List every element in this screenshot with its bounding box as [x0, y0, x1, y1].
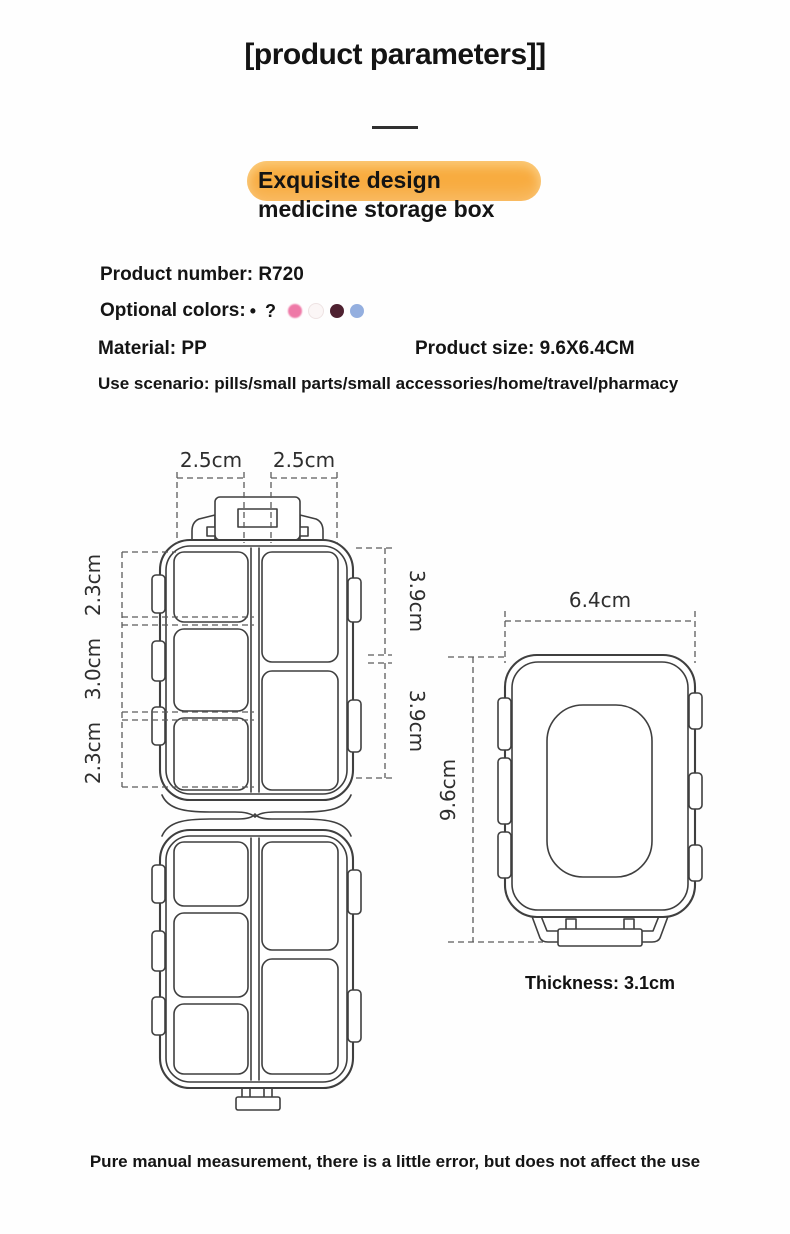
color-swatch-pink — [288, 304, 302, 318]
material: Material: PP — [98, 338, 207, 360]
dim-label-right-top: 3.9cm — [405, 570, 429, 632]
dim-right-heights: 3.9cm 3.9cm — [356, 548, 429, 778]
dim-label-height: 9.6cm — [436, 759, 460, 821]
color-swatch-blue — [350, 304, 364, 318]
dim-label-left-middle: 3.0cm — [81, 638, 105, 700]
dim-label-top-left: 2.5cm — [180, 448, 242, 472]
divider-dash — [372, 126, 418, 129]
color-swatch-white — [308, 303, 324, 319]
dim-label-right-bottom: 3.9cm — [405, 690, 429, 752]
product-number: Product number: R720 — [100, 264, 304, 286]
open-box-bottom-half — [152, 830, 361, 1088]
thickness-label: Thickness: 3.1cm — [525, 973, 675, 993]
dim-closed-width: 6.4cm — [505, 588, 695, 663]
dim-label-left-top: 2.3cm — [81, 554, 105, 616]
top-latch — [192, 497, 323, 545]
optional-colors-marks: • ? — [250, 301, 278, 322]
open-box-top-half — [152, 540, 361, 800]
highlight-line-1: Exquisite design — [258, 167, 441, 194]
highlight-line-2: medicine storage box — [258, 196, 494, 223]
dim-label-top-right: 2.5cm — [273, 448, 335, 472]
optional-colors-label: Optional colors: — [100, 300, 246, 322]
page-title: [product parameters]] — [0, 38, 790, 72]
closed-box-body — [498, 655, 702, 917]
footer-note: Pure manual measurement, there is a litt… — [0, 1152, 790, 1172]
bottom-latch — [236, 1086, 280, 1110]
product-size: Product size: 9.6X6.4CM — [415, 338, 635, 360]
dim-label-width: 6.4cm — [569, 588, 631, 612]
use-scenario: Use scenario: pills/small parts/small ac… — [98, 374, 678, 394]
closed-box-diagram: 6.4cm 9.6cm Thickness: 3.1cm — [440, 585, 760, 1005]
optional-colors-row: Optional colors: • ? — [100, 300, 364, 322]
color-swatch-maroon — [330, 304, 344, 318]
product-parameters-page: [product parameters]] Exquisite design m… — [0, 0, 790, 1234]
dim-label-left-bottom: 2.3cm — [81, 722, 105, 784]
open-box-diagram: 2.5cm 2.5cm 2.3cm 3.0cm 2.3cm 3.9cm 3.9c… — [80, 445, 430, 1115]
